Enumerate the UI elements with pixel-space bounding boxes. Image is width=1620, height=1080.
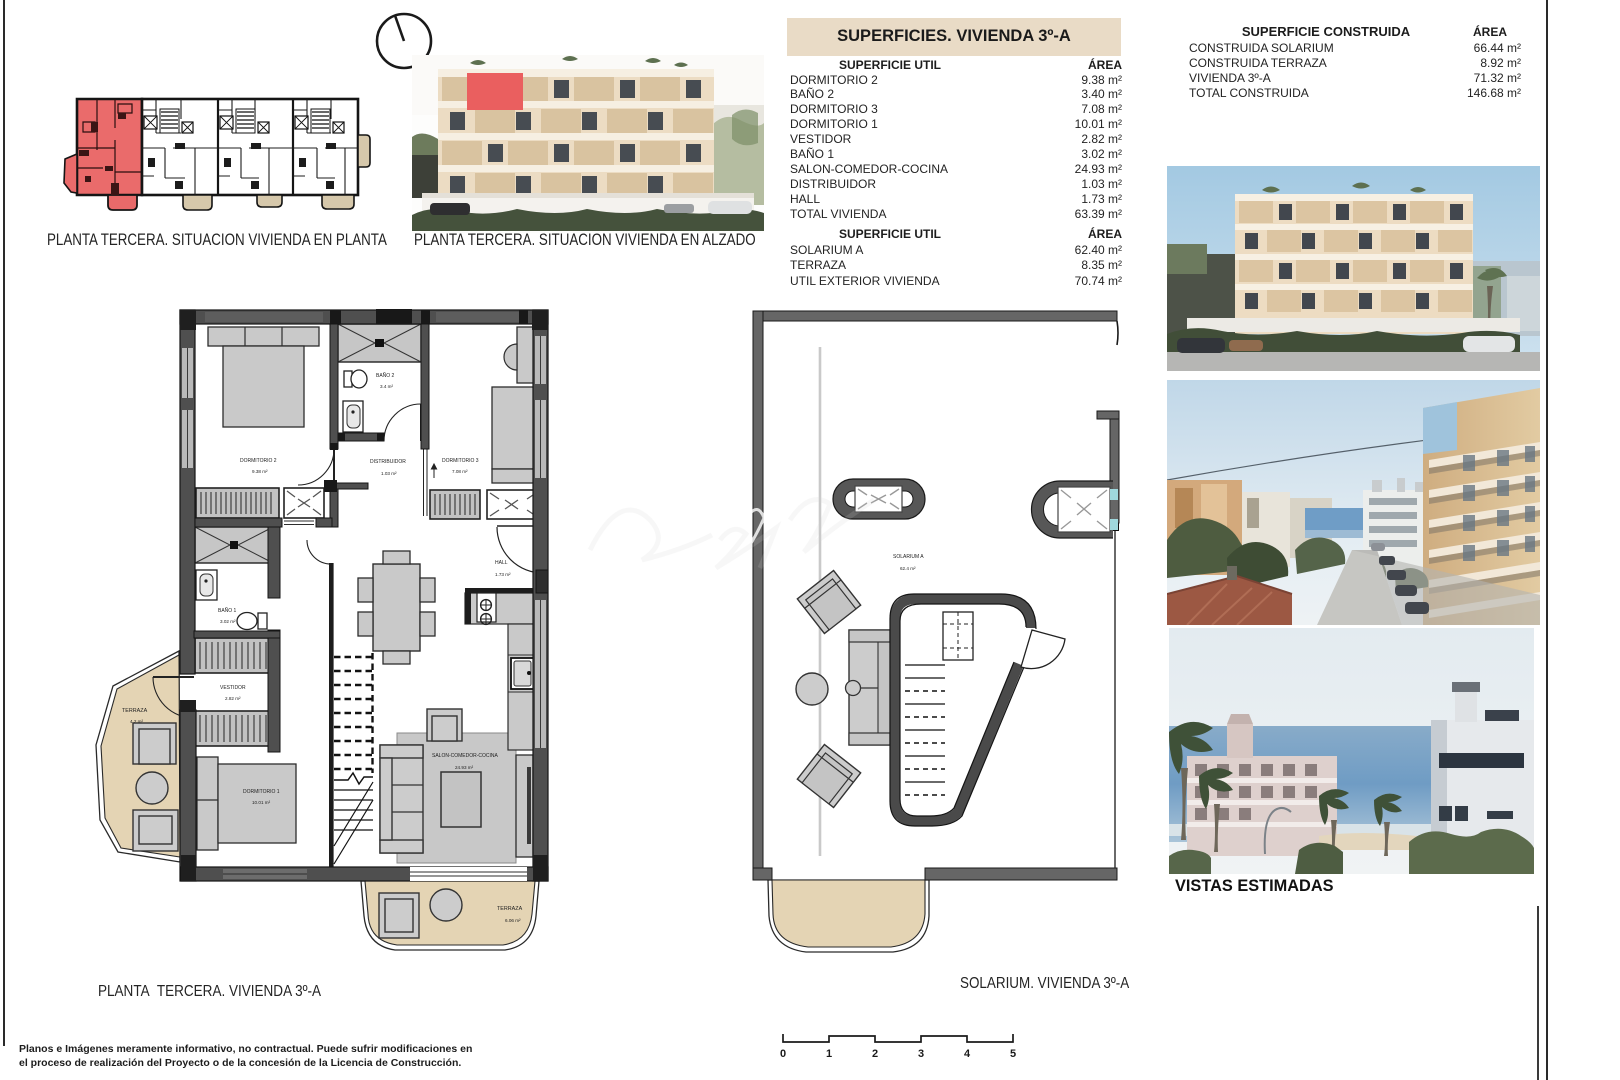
- svg-text:2.82 m²: 2.82 m²: [225, 696, 241, 701]
- svg-text:DORMITORIO 3: DORMITORIO 3: [442, 458, 479, 464]
- svg-text:10.01 m²: 10.01 m²: [252, 800, 271, 805]
- svg-text:1.73 m²: 1.73 m²: [495, 572, 511, 577]
- svg-text:TERRAZA: TERRAZA: [122, 708, 148, 714]
- svg-text:0: 0: [780, 1048, 786, 1060]
- svg-text:1.03 m²: 1.03 m²: [381, 471, 397, 476]
- svg-text:3: 3: [918, 1048, 924, 1060]
- svg-text:4: 4: [964, 1048, 971, 1060]
- svg-text:VESTIDOR: VESTIDOR: [220, 685, 246, 691]
- svg-text:3.02 m²: 3.02 m²: [220, 619, 236, 624]
- svg-text:SALON-COMEDOR-COCINA: SALON-COMEDOR-COCINA: [432, 753, 499, 759]
- svg-text:3.4 m²: 3.4 m²: [380, 384, 393, 389]
- svg-text:24.93 m²: 24.93 m²: [455, 765, 474, 770]
- svg-text:5: 5: [1010, 1048, 1016, 1060]
- svg-text:2: 2: [872, 1048, 878, 1060]
- svg-text:BAÑO 2: BAÑO 2: [376, 372, 395, 379]
- svg-text:HALL: HALL: [495, 560, 508, 566]
- svg-text:7.08 m²: 7.08 m²: [452, 469, 468, 474]
- svg-text:DISTRIBUIDOR: DISTRIBUIDOR: [370, 459, 406, 465]
- svg-text:DORMITORIO 1: DORMITORIO 1: [243, 789, 280, 795]
- svg-text:DORMITORIO 2: DORMITORIO 2: [240, 458, 277, 464]
- svg-text:1: 1: [826, 1048, 832, 1060]
- svg-text:4.2 m²: 4.2 m²: [130, 719, 143, 724]
- svg-text:9.38 m²: 9.38 m²: [252, 469, 268, 474]
- svg-text:6.06 m²: 6.06 m²: [505, 918, 521, 923]
- svg-text:BAÑO 1: BAÑO 1: [218, 607, 237, 614]
- svg-text:TERRAZA: TERRAZA: [497, 906, 523, 912]
